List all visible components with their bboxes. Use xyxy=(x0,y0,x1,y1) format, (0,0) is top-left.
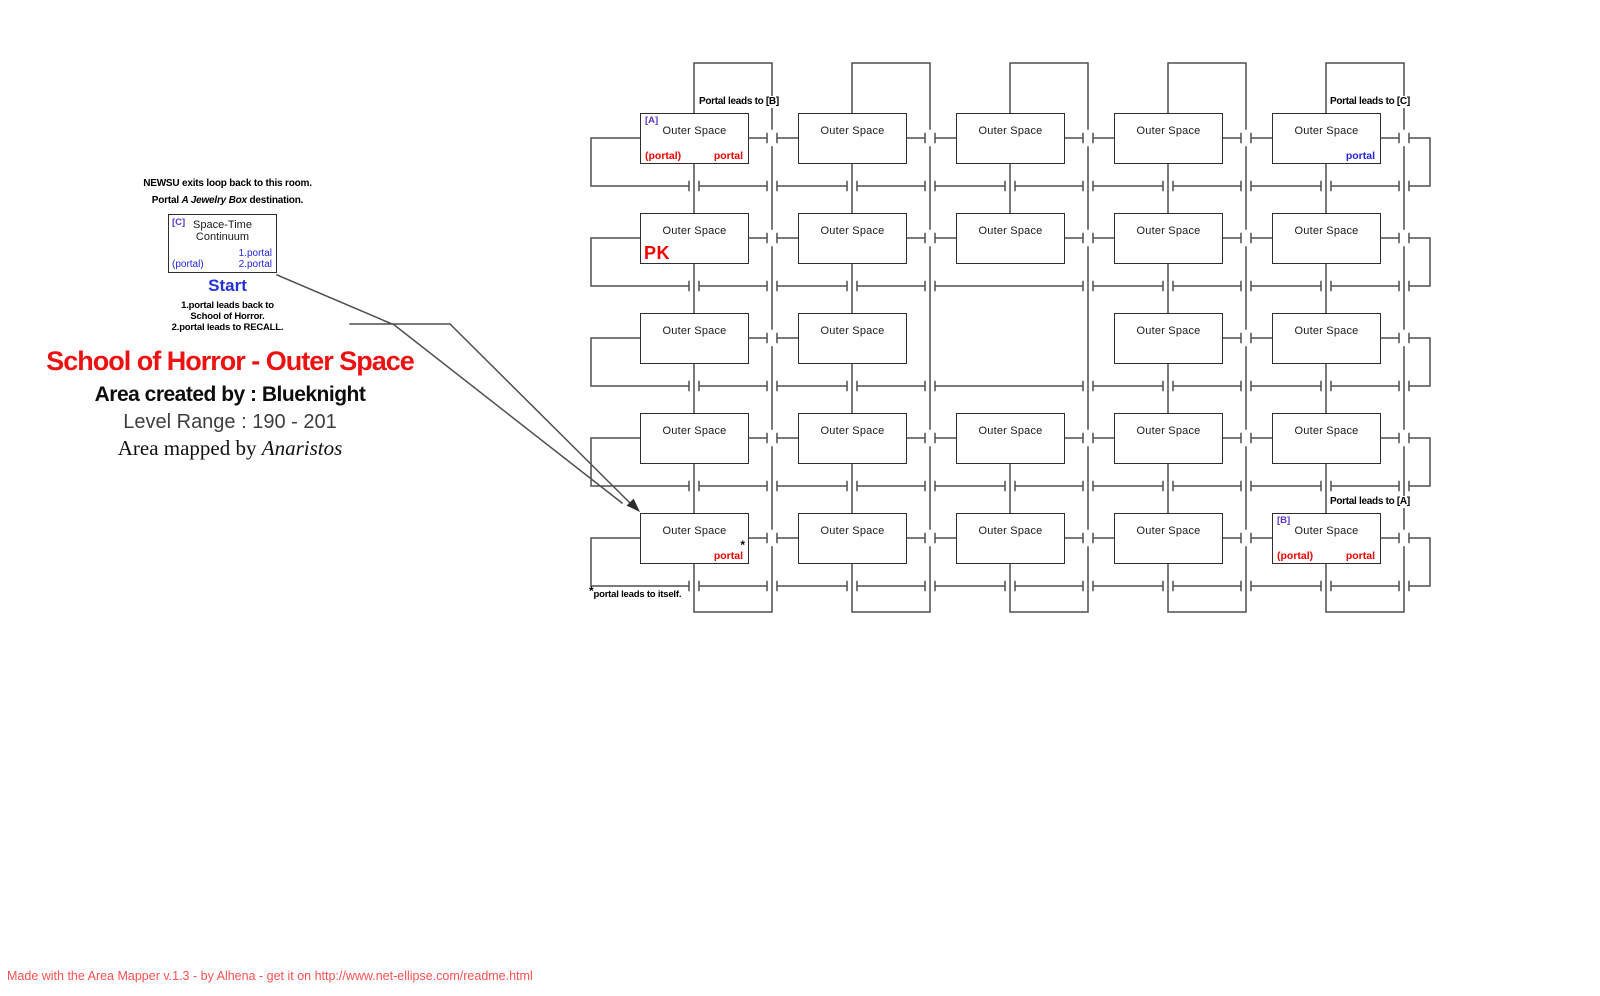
map-room-r2c2: Outer Space xyxy=(798,213,907,264)
mapper-name: Anaristos xyxy=(262,436,343,460)
legend-portal-notes: 1.portal leads back to School of Horror.… xyxy=(0,300,455,333)
room-label: Outer Space xyxy=(641,225,748,237)
note2-prefix: Portal xyxy=(152,195,182,206)
map-room-r2c4: Outer Space xyxy=(1114,213,1223,264)
map-room-r5c3: Outer Space xyxy=(956,513,1065,564)
map-room-r4c5: Outer Space xyxy=(1272,413,1381,464)
area-creator: Area created by : Blueknight xyxy=(0,383,460,407)
area-mapper-credit: Area mapped by Anaristos xyxy=(0,436,460,461)
room-portal-paren: (portal) xyxy=(1277,550,1313,562)
map-room-r5c4: Outer Space xyxy=(1114,513,1223,564)
room-label: Outer Space xyxy=(957,525,1064,537)
room-tag: [A] xyxy=(645,115,658,126)
room-label: Outer Space xyxy=(799,325,906,337)
room-label: Outer Space xyxy=(1115,325,1222,337)
map-room-r3c2: Outer Space xyxy=(798,313,907,364)
map-room-r2c3: Outer Space xyxy=(956,213,1065,264)
map-room-r1c4: Outer Space xyxy=(1114,113,1223,164)
mapped-prefix: Area mapped by xyxy=(118,436,262,460)
room-tag: [B] xyxy=(1277,515,1290,526)
map-room-r1c1: Outer Space[A](portal)portal xyxy=(640,113,749,164)
map-room-r3c5: Outer Space xyxy=(1272,313,1381,364)
footnote-asterisk: * xyxy=(589,584,593,598)
room-label: Outer Space xyxy=(1273,325,1380,337)
pk-flag: PK xyxy=(644,243,670,264)
map-room-r4c2: Outer Space xyxy=(798,413,907,464)
room-label: Outer Space xyxy=(1273,225,1380,237)
room-label: Outer Space xyxy=(1115,525,1222,537)
room-label: Outer Space xyxy=(799,225,906,237)
legend-portal-2: 2.portal xyxy=(239,259,272,270)
level-range: Level Range : 190 - 201 xyxy=(0,411,460,434)
room-label: Outer Space xyxy=(1273,425,1380,437)
map-room-r5c2: Outer Space xyxy=(798,513,907,564)
room-label: Outer Space xyxy=(641,425,748,437)
map-room-r1c2: Outer Space xyxy=(798,113,907,164)
map-room-r4c4: Outer Space xyxy=(1114,413,1223,464)
portal-destination-note-b: Portal leads to [B] xyxy=(698,96,780,108)
room-label: Outer Space xyxy=(1273,525,1380,537)
room-tag-c: [C] xyxy=(172,217,185,228)
map-room-r5c5: Outer Space[B](portal)portal xyxy=(1272,513,1381,564)
room-label: Outer Space xyxy=(1115,425,1222,437)
legend-portal-paren: (portal) xyxy=(172,259,204,270)
portal-footnote: *portal leads to itself. xyxy=(589,586,681,600)
portal-note-line3: 2.portal leads to RECALL. xyxy=(0,322,455,333)
map-room-r4c1: Outer Space xyxy=(640,413,749,464)
room-label: Outer Space xyxy=(1273,125,1380,137)
room-label: Outer Space xyxy=(1115,125,1222,137)
map-room-r3c1: Outer Space xyxy=(640,313,749,364)
portal-note-line1: 1.portal leads back to xyxy=(0,300,455,311)
room-label: Outer Space xyxy=(957,125,1064,137)
room-footnote-mark: * xyxy=(740,538,745,552)
room-label: Outer Space xyxy=(799,125,906,137)
room-portal: portal xyxy=(714,150,743,162)
map-room-r2c1: Outer SpacePK xyxy=(640,213,749,264)
mapper-tool-credit: Made with the Area Mapper v.1.3 - by Alh… xyxy=(7,969,533,983)
area-map-page: Outer Space[A](portal)portalOuter SpaceO… xyxy=(0,0,1600,996)
room-label: Outer Space xyxy=(957,425,1064,437)
room-label: Outer Space xyxy=(799,425,906,437)
legend-note-newsu: NEWSU exits loop back to this room. xyxy=(0,178,455,189)
portal-destination-note-c: Portal leads to [C] xyxy=(1329,96,1411,108)
map-room-r3c4: Outer Space xyxy=(1114,313,1223,364)
room-portal: portal xyxy=(714,550,743,562)
portal-destination-note-a: Portal leads to [A] xyxy=(1329,496,1411,508)
room-portal-paren: (portal) xyxy=(645,150,681,162)
map-room-r5c1: Outer Spaceportal* xyxy=(640,513,749,564)
legend-room-space-time-continuum: [C] Space-TimeContinuum 1.portal (portal… xyxy=(168,214,277,273)
room-label: Outer Space xyxy=(957,225,1064,237)
map-room-r1c5: Outer Spaceportal xyxy=(1272,113,1381,164)
room-label: Outer Space xyxy=(799,525,906,537)
room-label: Outer Space xyxy=(641,125,748,137)
page-title: School of Horror - Outer Space xyxy=(0,346,460,377)
map-room-r2c5: Outer Space xyxy=(1272,213,1381,264)
note2-suffix: destination. xyxy=(247,195,303,206)
legend-portal-1: 1.portal xyxy=(239,248,272,259)
note2-item-name: A Jewelry Box xyxy=(182,195,247,206)
room-portal: portal xyxy=(1346,550,1375,562)
room-label: Outer Space xyxy=(641,525,748,537)
legend-note-jewelry-box: Portal A Jewelry Box destination. xyxy=(0,195,455,206)
map-room-r1c3: Outer Space xyxy=(956,113,1065,164)
room-portal: portal xyxy=(1346,150,1375,162)
map-room-r4c3: Outer Space xyxy=(956,413,1065,464)
start-label: Start xyxy=(0,276,455,296)
portal-note-line2: School of Horror. xyxy=(0,311,455,322)
room-label: Outer Space xyxy=(641,325,748,337)
footnote-text: portal leads to itself. xyxy=(593,589,681,600)
room-label: Outer Space xyxy=(1115,225,1222,237)
